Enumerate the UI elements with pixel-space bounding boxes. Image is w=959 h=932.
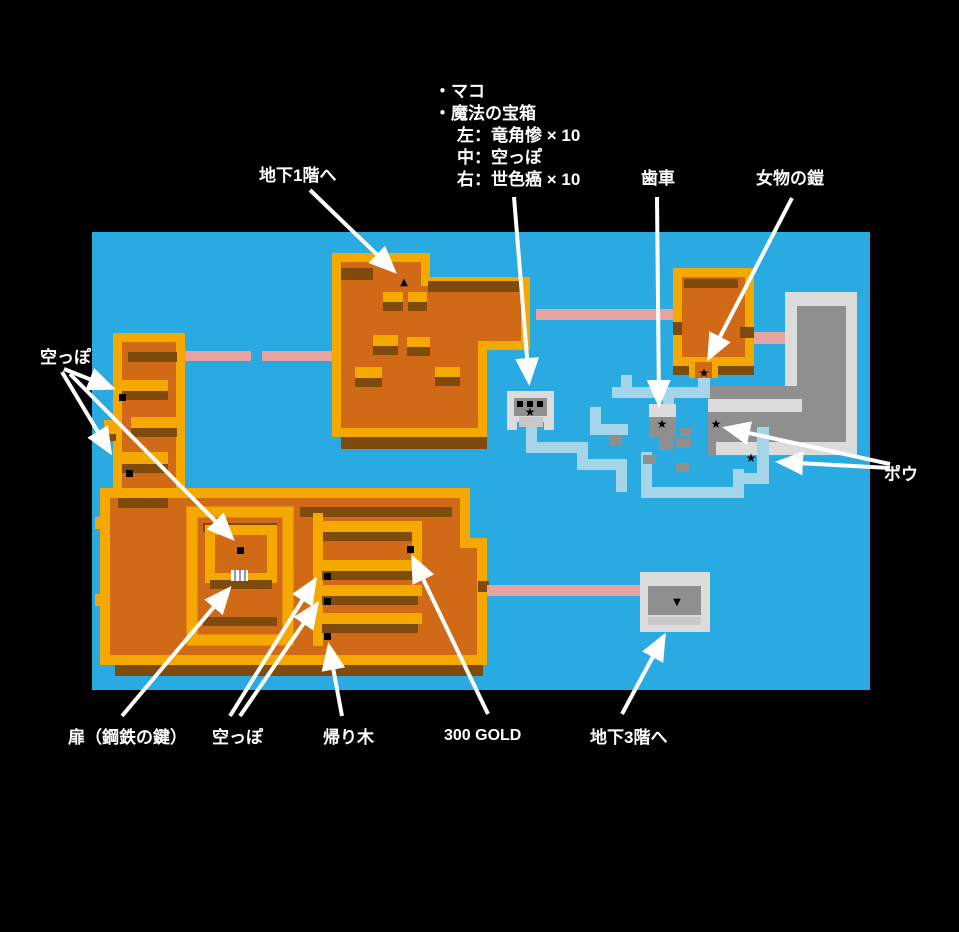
- chest-marker: [324, 633, 331, 640]
- room-bottom-left-complex: [95, 488, 487, 676]
- note-chest-left: 左：竜角惨 × 10: [457, 125, 580, 145]
- chest-marker: [126, 470, 133, 477]
- arrow-to-gear: [657, 197, 659, 404]
- map-canvas: ★ ★ ★ ★ ★ ▲ ▼ ・マコ ・魔法の宝箱 左：竜角惨 × 10 中：空っ…: [0, 0, 959, 932]
- room-top-right: [673, 268, 754, 378]
- note-chest-right: 右：世色癌 × 10: [457, 169, 580, 189]
- star-icon: ★: [657, 417, 668, 431]
- label-return-tree: 帰り木: [323, 727, 375, 747]
- dungeon-map-screenshot: ★ ★ ★ ★ ★ ▲ ▼ ・マコ ・魔法の宝箱 左：竜角惨 × 10 中：空っ…: [0, 0, 959, 932]
- chest-marker: [517, 401, 523, 407]
- note-magic-chest: ・魔法の宝箱: [434, 103, 536, 123]
- chest-marker: [237, 547, 244, 554]
- note-mako: ・マコ: [434, 82, 485, 101]
- chest-marker: [324, 573, 331, 580]
- label-to-b1f: 地下1階へ: [259, 165, 336, 185]
- star-icon: ★: [525, 405, 536, 419]
- chest-marker: [119, 394, 126, 401]
- door-steel-key: [231, 570, 248, 581]
- stairs-down-icon: ▼: [673, 597, 681, 608]
- label-door-steel-key: 扉（鋼鉄の鍵）: [68, 727, 187, 747]
- corridor-middle-to-topright: [536, 309, 676, 320]
- label-to-b3f: 地下3階へ: [590, 727, 667, 747]
- label-empty-bottom: 空っぽ: [212, 727, 264, 747]
- star-icon: ★: [746, 451, 757, 465]
- star-icon: ★: [711, 417, 722, 431]
- note-chest-middle: 中：空っぽ: [457, 147, 543, 167]
- label-pou: ポウ: [884, 464, 918, 484]
- label-gear: 歯車: [641, 168, 675, 188]
- chest-marker: [324, 598, 331, 605]
- label-300-gold: 300 GOLD: [444, 727, 521, 744]
- stairs-up-icon: ▲: [400, 277, 408, 288]
- chest-marker: [407, 546, 414, 553]
- label-womens-armor: 女物の鎧: [756, 168, 824, 188]
- star-icon: ★: [699, 366, 710, 380]
- chest-marker: [537, 401, 543, 407]
- label-empty-left: 空っぽ: [40, 347, 92, 367]
